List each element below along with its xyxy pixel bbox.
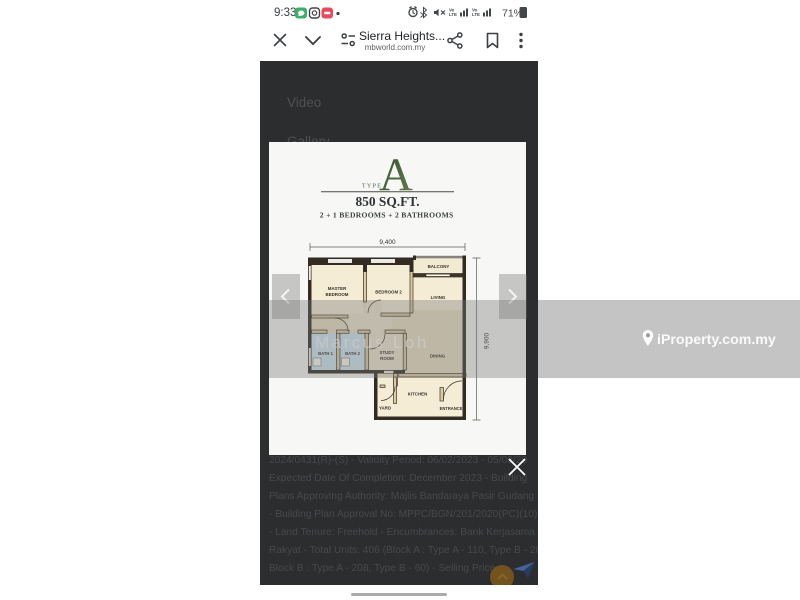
svg-text:iProperty.com.my: iProperty.com.my: [657, 332, 776, 348]
svg-text:BALCONY: BALCONY: [428, 264, 450, 269]
svg-text:MASTER: MASTER: [328, 286, 347, 291]
svg-text:2 + 1 BEDROOMS + 2 BATHROOMS: 2 + 1 BEDROOMS + 2 BATHROOMS: [320, 211, 454, 220]
svg-text:BEDROOM: BEDROOM: [326, 292, 349, 297]
svg-text:YARD: YARD: [379, 406, 391, 411]
svg-text:BEDROOM 2: BEDROOM 2: [375, 290, 402, 295]
svg-text:LTE: LTE: [472, 12, 480, 17]
svg-text:LTE: LTE: [449, 12, 457, 17]
svg-text:ENTRANCE: ENTRANCE: [440, 406, 463, 411]
svg-text:850 SQ.FT.: 850 SQ.FT.: [355, 194, 419, 209]
svg-text:KITCHEN: KITCHEN: [408, 392, 428, 397]
svg-text:9,400: 9,400: [379, 239, 396, 246]
